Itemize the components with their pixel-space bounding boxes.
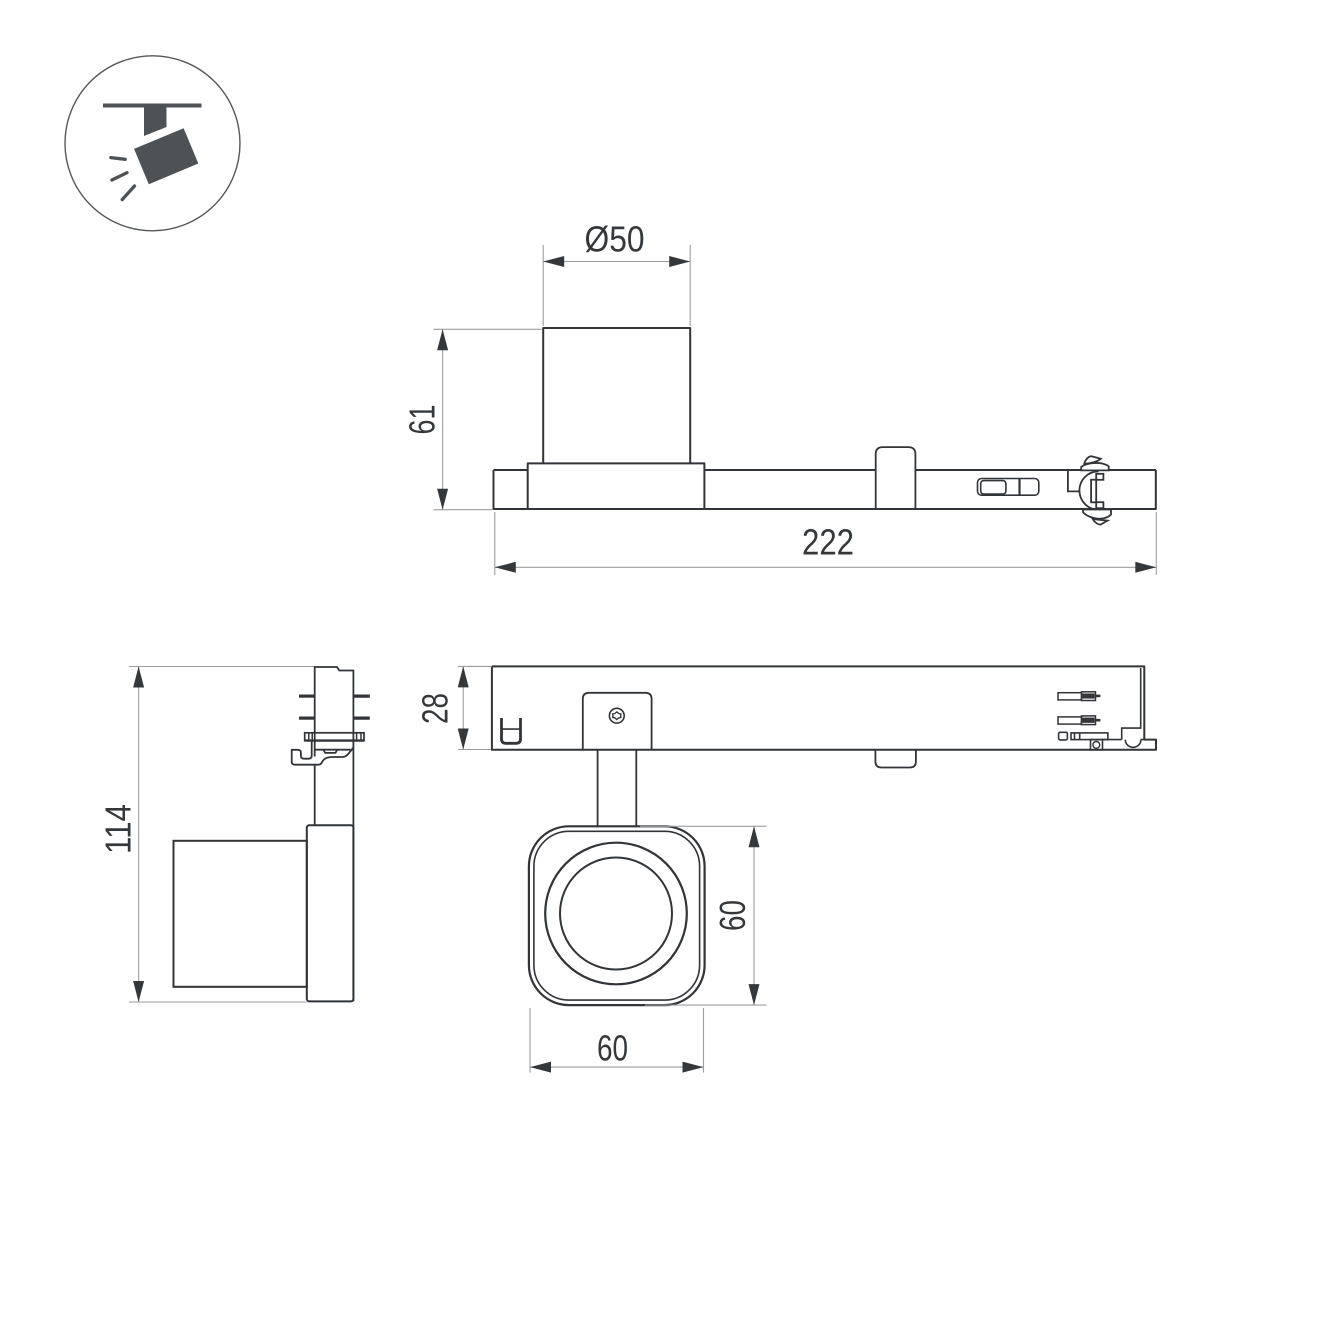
- svg-text:60: 60: [597, 1028, 628, 1069]
- svg-text:60: 60: [712, 900, 753, 931]
- svg-text:28: 28: [415, 693, 456, 724]
- svg-text:114: 114: [98, 804, 139, 854]
- svg-text:222: 222: [802, 522, 854, 563]
- svg-text:61: 61: [402, 405, 443, 435]
- svg-text:Ø50: Ø50: [585, 219, 645, 260]
